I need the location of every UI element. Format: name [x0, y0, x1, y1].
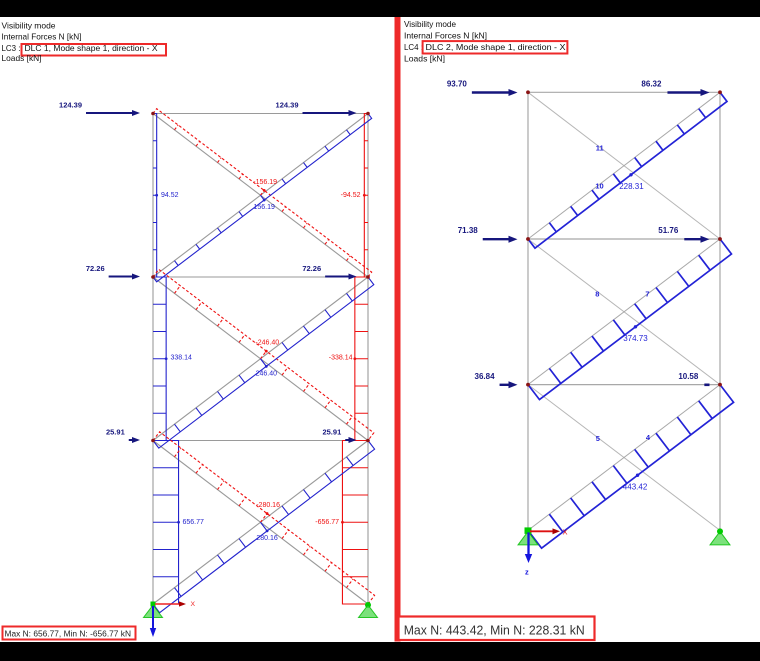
svg-text:Internal Forces N [kN]: Internal Forces N [kN]: [2, 32, 82, 42]
svg-text:25.91: 25.91: [106, 428, 125, 437]
svg-text:Loads [kN]: Loads [kN]: [2, 53, 42, 63]
svg-text:Internal Forces N [kN]: Internal Forces N [kN]: [404, 31, 487, 41]
svg-text:Visibility mode: Visibility mode: [2, 20, 56, 30]
svg-text:-94.52: -94.52: [341, 192, 361, 199]
svg-text:93.70: 93.70: [447, 80, 468, 89]
svg-text:86.32: 86.32: [641, 80, 662, 89]
svg-text:72.26: 72.26: [86, 264, 105, 273]
svg-text:156.19: 156.19: [253, 204, 275, 211]
svg-text:Max N: 656.77, Min N: -656.77: Max N: 656.77, Min N: -656.77 kN: [5, 629, 132, 639]
svg-text:5: 5: [596, 434, 600, 443]
svg-text:z: z: [525, 568, 529, 577]
svg-text:71.38: 71.38: [458, 226, 479, 235]
svg-text:124.39: 124.39: [276, 101, 299, 110]
svg-text:10.58: 10.58: [678, 372, 699, 381]
svg-text:246.40: 246.40: [256, 370, 278, 377]
svg-text:Loads [kN]: Loads [kN]: [404, 53, 445, 63]
svg-text:10: 10: [595, 182, 603, 191]
svg-text:228.31: 228.31: [619, 181, 644, 191]
svg-text:338.14: 338.14: [171, 355, 193, 362]
svg-text:280.16: 280.16: [256, 535, 278, 542]
svg-text:X: X: [191, 601, 196, 608]
svg-text:7: 7: [645, 290, 649, 299]
svg-text:Visibility mode: Visibility mode: [404, 19, 456, 29]
svg-text:LC3 :: LC3 :: [2, 43, 21, 53]
svg-text:11: 11: [596, 143, 604, 152]
svg-text:94.52: 94.52: [161, 192, 179, 199]
svg-text:-280.16: -280.16: [256, 502, 280, 509]
svg-text:DLC 1, Mode shape 1, direction: DLC 1, Mode shape 1, direction - X: [25, 43, 158, 53]
svg-text:25.91: 25.91: [322, 428, 341, 437]
svg-text:51.76: 51.76: [658, 226, 679, 235]
svg-text:Max N: 443.42, Min N: 228.31 k: Max N: 443.42, Min N: 228.31 kN: [404, 623, 585, 638]
svg-text:-246.40: -246.40: [255, 340, 279, 347]
svg-text:8: 8: [595, 290, 599, 299]
svg-text:X: X: [563, 528, 568, 537]
svg-text:656.77: 656.77: [183, 519, 205, 526]
svg-text:DLC 2, Mode shape 1, direction: DLC 2, Mode shape 1, direction - X: [426, 42, 566, 52]
svg-text:374.73: 374.73: [623, 333, 648, 343]
svg-text:36.84: 36.84: [475, 372, 496, 381]
svg-text:72.26: 72.26: [302, 264, 321, 273]
svg-text:-338.14: -338.14: [329, 355, 353, 362]
svg-text:LC4 :: LC4 :: [404, 42, 423, 52]
svg-text:443.42: 443.42: [623, 482, 648, 492]
svg-text:-156.19: -156.19: [253, 179, 277, 186]
svg-text:-656.77: -656.77: [315, 519, 339, 526]
svg-text:124.39: 124.39: [59, 101, 82, 110]
